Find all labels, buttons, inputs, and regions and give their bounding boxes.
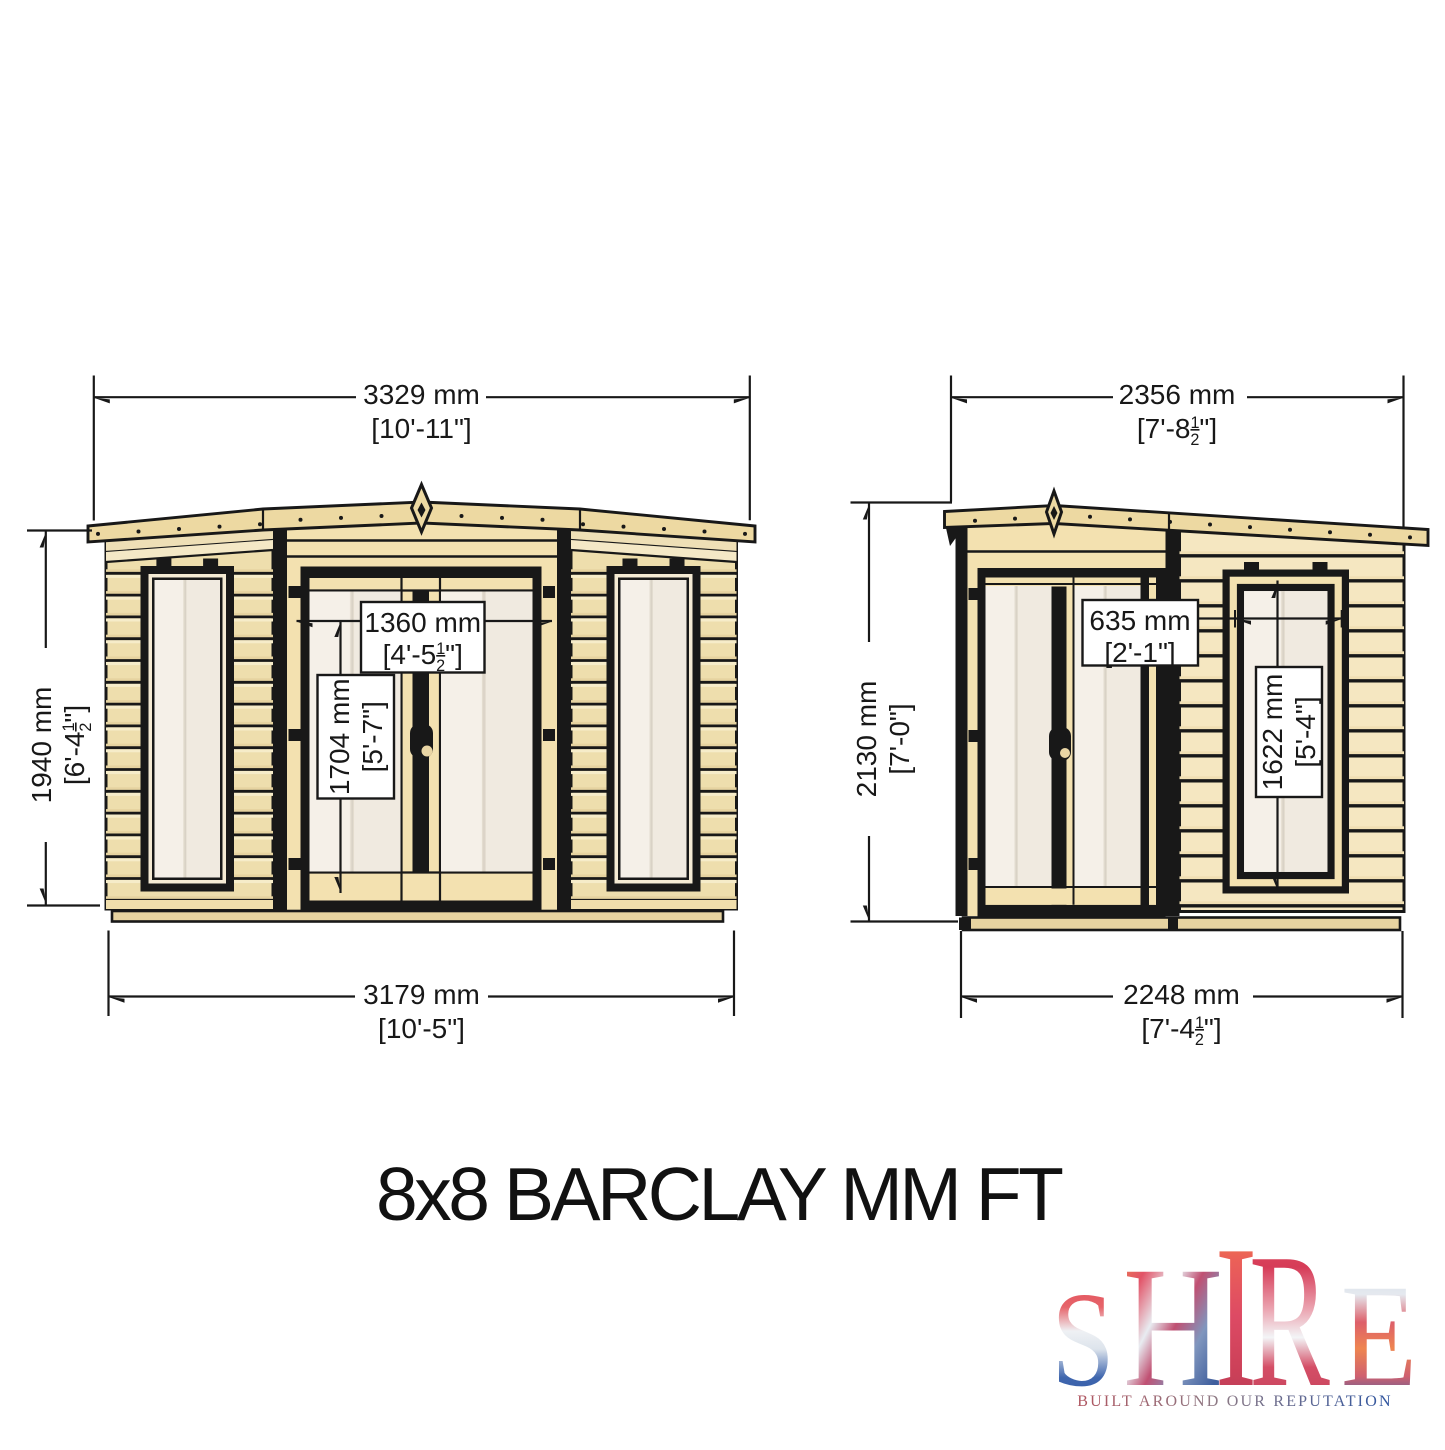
svg-text:[4'-512"]: [4'-512"] (383, 639, 463, 675)
svg-text:3329 mm: 3329 mm (363, 379, 480, 410)
svg-text:[7'-0"]: [7'-0"] (884, 703, 915, 774)
svg-text:1940 mm: 1940 mm (26, 687, 57, 804)
svg-text:1360 mm: 1360 mm (364, 607, 481, 638)
svg-text:635 mm: 635 mm (1089, 605, 1190, 636)
svg-text:1622 mm: 1622 mm (1257, 674, 1288, 791)
svg-text:2130 mm: 2130 mm (851, 681, 882, 798)
svg-text:[2'-1"]: [2'-1"] (1104, 637, 1175, 668)
svg-text:3179 mm: 3179 mm (363, 979, 480, 1010)
svg-text:[5'-4"]: [5'-4"] (1290, 696, 1321, 767)
svg-text:BUILT AROUND OUR REPUTATION: BUILT AROUND OUR REPUTATION (1077, 1393, 1392, 1410)
svg-text:[7'-812"]: [7'-812"] (1137, 413, 1217, 449)
svg-text:2248 mm: 2248 mm (1123, 979, 1240, 1010)
svg-text:8x8 BARCLAY MM FT: 8x8 BARCLAY MM FT (376, 1152, 1064, 1236)
svg-text:[10'-11"]: [10'-11"] (371, 413, 471, 444)
svg-text:[5'-7"]: [5'-7"] (357, 701, 388, 772)
svg-text:[6'-412"]: [6'-412"] (59, 705, 95, 785)
svg-text:[10'-5"]: [10'-5"] (378, 1013, 465, 1044)
svg-text:1704 mm: 1704 mm (324, 678, 355, 795)
svg-text:[7'-412"]: [7'-412"] (1141, 1013, 1221, 1049)
svg-text:2356 mm: 2356 mm (1119, 379, 1236, 410)
